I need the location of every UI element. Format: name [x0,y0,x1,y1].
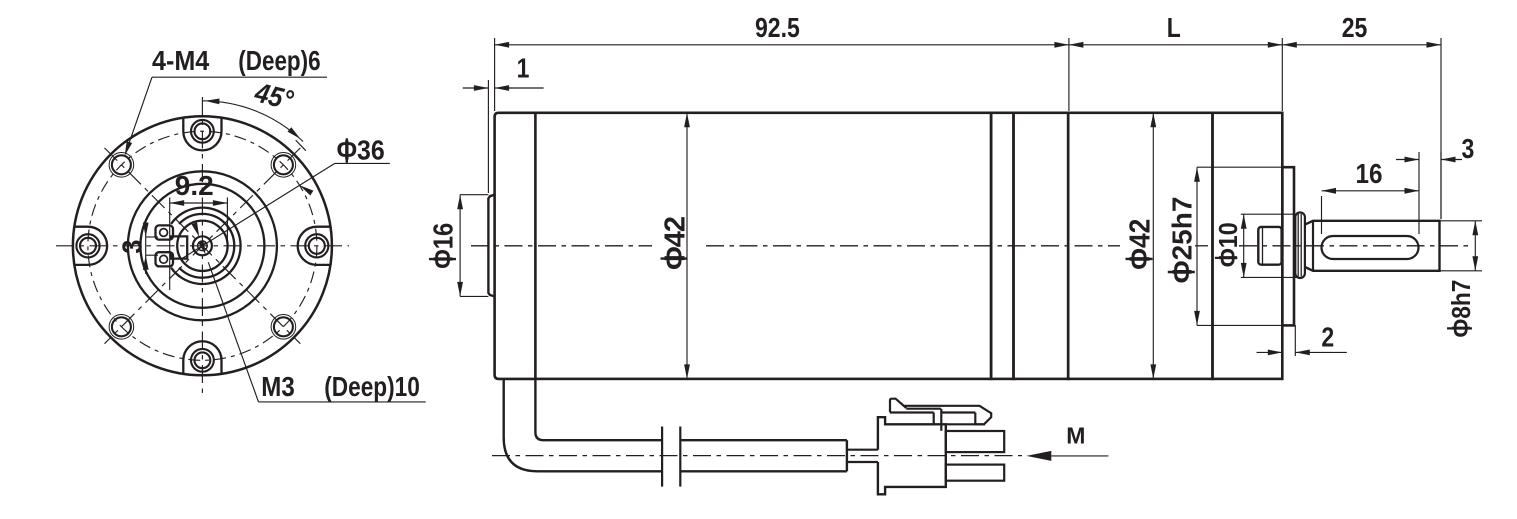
svg-text:Φ36: Φ36 [337,135,385,166]
svg-text:(Deep)10: (Deep)10 [324,371,420,402]
svg-text:25: 25 [1342,12,1368,43]
svg-text:9.2: 9.2 [175,170,214,201]
svg-text:1: 1 [517,53,530,84]
svg-text:(Deep)6: (Deep)6 [238,45,320,76]
svg-text:3: 3 [116,240,147,254]
svg-text:2: 2 [1321,322,1334,353]
svg-text:3: 3 [1462,133,1475,164]
svg-text:Φ10: Φ10 [1213,222,1243,267]
svg-text:92.5: 92.5 [755,12,800,43]
svg-text:Φ25h7: Φ25h7 [1166,197,1197,284]
svg-text:Φ16: Φ16 [428,223,459,269]
svg-text:M3: M3 [261,371,295,402]
svg-text:16: 16 [1356,158,1383,189]
svg-text:M: M [1066,422,1085,448]
svg-text:4-M4: 4-M4 [152,45,210,76]
svg-text:45°: 45° [251,76,297,116]
svg-text:Φ42: Φ42 [1125,219,1157,270]
svg-text:L: L [1167,12,1181,43]
